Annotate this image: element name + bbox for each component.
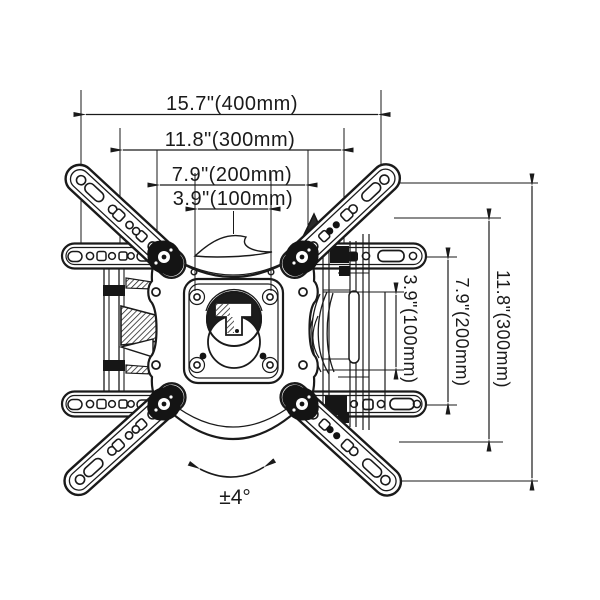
dim-label-200mm-vertical: 7.9"(200mm): [452, 278, 472, 387]
dim-label-400mm: 15.7"(400mm): [166, 93, 298, 115]
tilt-swivel-arrow: [200, 467, 264, 477]
pivot-hub-top-left: [148, 241, 181, 274]
pivot-hub-bottom-left: [148, 388, 181, 421]
tilt-angle-annotation: ±4°: [200, 467, 264, 509]
dim-label-100mm-vertical: 3.9"(100mm): [400, 275, 420, 384]
dim-label-200mm: 7.9"(200mm): [172, 164, 292, 186]
dim-label-300mm: 11.8"(300mm): [165, 129, 296, 151]
tilt-angle-label: ±4°: [219, 486, 251, 509]
cable-opening: [206, 290, 262, 368]
tv-mount-technical-drawing: 15.7"(400mm) 11.8"(300mm) 7.9"(200mm) 3.…: [0, 0, 600, 600]
top-fold-detail: [195, 236, 272, 257]
pivot-hub-bottom-right: [286, 388, 319, 421]
dim-label-300mm-vertical: 11.8"(300mm): [493, 270, 513, 388]
pivot-hub-top-right: [286, 241, 319, 274]
dim-label-100mm: 3.9"(100mm): [173, 188, 293, 210]
